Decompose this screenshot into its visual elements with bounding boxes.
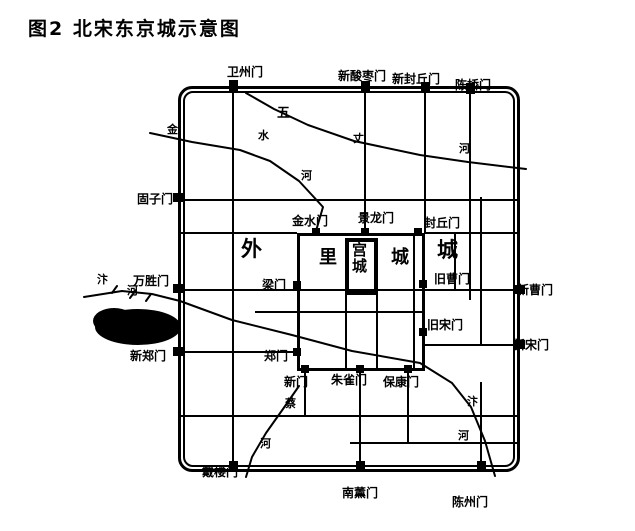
- river-label-cai-1: 蔡: [285, 398, 296, 409]
- gate-label-jinshuimen: 金水门: [292, 215, 328, 227]
- gate-label-guzimen: 固子门: [137, 193, 173, 205]
- river-label-wuzhang-2: 丈: [353, 133, 364, 144]
- gate-label-xinmen: 新门: [284, 376, 308, 388]
- river-label-wuzhang-3: 河: [459, 143, 470, 154]
- gate-label-baokangmen: 保康门: [383, 376, 419, 388]
- gate-label-jiusongmen: 旧宋门: [427, 319, 463, 331]
- river-label-bian-se-2: 河: [458, 430, 469, 441]
- river-label-cai-2: 河: [260, 438, 271, 449]
- gate-label-xinzhengmen: 新郑门: [130, 350, 166, 362]
- label-inner-city-cheng: 城: [391, 249, 409, 267]
- label-outer-city-cheng: 城: [437, 240, 458, 261]
- label-palace-city: 宫城: [351, 242, 366, 292]
- gate-label-dailoumen: 戴楼门: [202, 466, 238, 478]
- label-inner-city-li: 里: [319, 249, 337, 267]
- gate-label-liangmen: 梁门: [262, 279, 286, 291]
- gate-label-chenqiaomen: 陈桥门: [455, 79, 491, 91]
- label-outer-city-wai: 外: [241, 239, 262, 260]
- river-label-jinshui-3: 河: [301, 170, 312, 181]
- pond: [93, 308, 181, 345]
- gate-label-chenzhoumen: 陈州门: [452, 496, 488, 508]
- gate-label-jiucaomen: 旧曹门: [434, 273, 470, 285]
- gate-label-xincaomen: 新曹门: [517, 284, 553, 296]
- gate-label-zhuquemen: 朱雀门: [331, 374, 367, 386]
- river-label-wuzhang-1: 五: [277, 107, 290, 120]
- gate-label-nanxunmen: 南薰门: [342, 487, 378, 499]
- river-label-jinshui-1: 金: [167, 124, 178, 135]
- gate-label-xinsuanzaomen: 新酸枣门: [338, 70, 386, 82]
- gate-label-wanshengmen: 万胜门: [133, 275, 169, 287]
- river-label-bian-se-1: 汴: [467, 396, 478, 407]
- river-label-bian-west-1: 汴: [97, 274, 108, 285]
- gate-label-jinglongmen: 景龙门: [358, 212, 394, 224]
- gate-label-zhengmen: 郑门: [264, 350, 288, 362]
- river-label-bian-west-2: 河: [127, 285, 138, 296]
- gate-label-xinsongmen: 新宋门: [513, 339, 549, 351]
- figure-canvas: 图2 北宋东京城示意图: [0, 0, 635, 531]
- river-label-jinshui-2: 水: [258, 130, 269, 141]
- gate-label-xinfengqiumen: 新封丘门: [392, 73, 440, 85]
- gate-label-fengqiumen: 封丘门: [424, 217, 460, 229]
- gate-label-weizhoumen: 卫州门: [227, 66, 263, 78]
- pond-shape-2: [93, 308, 135, 334]
